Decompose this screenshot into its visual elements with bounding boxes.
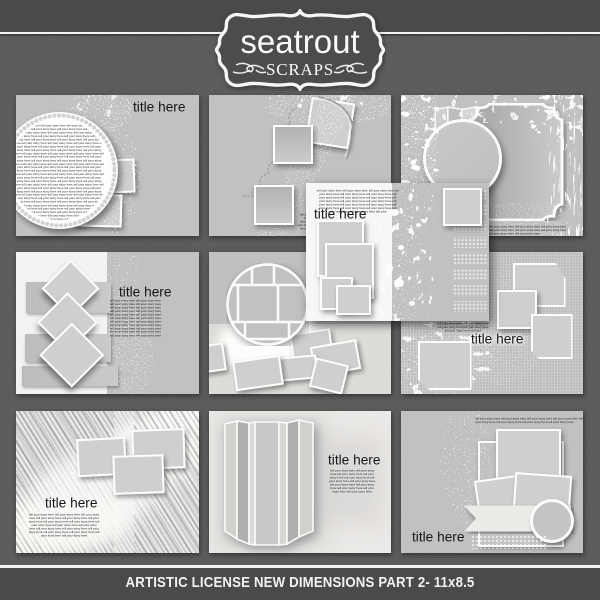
svg-text:SCRAPS: SCRAPS bbox=[266, 60, 334, 79]
svg-text:seatrout: seatrout bbox=[240, 23, 359, 60]
